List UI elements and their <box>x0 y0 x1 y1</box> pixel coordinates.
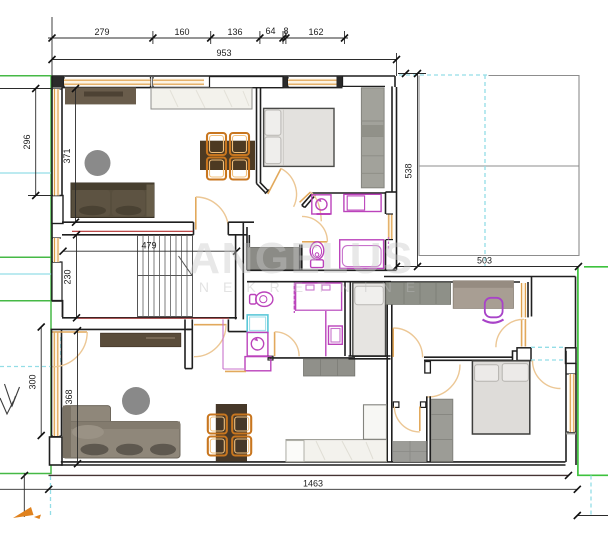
svg-text:368: 368 <box>64 389 74 404</box>
svg-text:503: 503 <box>477 256 492 266</box>
svg-text:300: 300 <box>28 374 38 389</box>
svg-text:230: 230 <box>63 269 73 284</box>
svg-text:NEKRETNINE: NEKRETNINE <box>199 279 429 295</box>
svg-text:296: 296 <box>22 134 32 149</box>
svg-text:8: 8 <box>283 26 288 36</box>
svg-text:ANGELUS: ANGELUS <box>188 234 414 283</box>
svg-text:162: 162 <box>308 27 323 37</box>
svg-text:479: 479 <box>141 241 156 251</box>
svg-text:64: 64 <box>265 26 275 36</box>
svg-text:160: 160 <box>174 27 189 37</box>
svg-text:279: 279 <box>94 27 109 37</box>
svg-text:953: 953 <box>216 48 231 58</box>
svg-text:538: 538 <box>404 163 414 178</box>
svg-text:1463: 1463 <box>303 479 323 489</box>
svg-text:371: 371 <box>62 148 72 163</box>
svg-text:136: 136 <box>227 27 242 37</box>
